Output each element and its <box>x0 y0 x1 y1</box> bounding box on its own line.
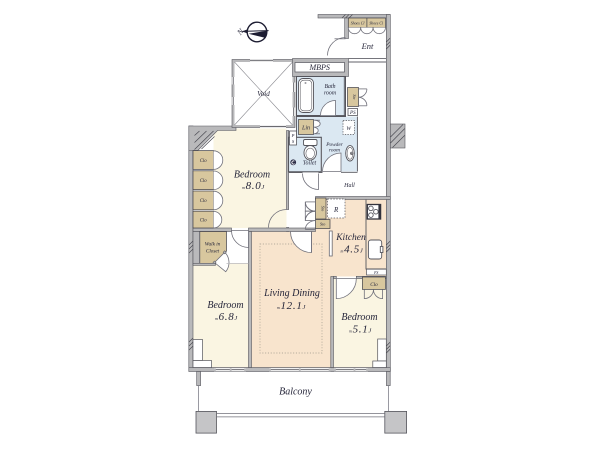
svg-text:FS: FS <box>373 271 378 275</box>
svg-text:Hall: Hall <box>343 183 355 189</box>
svg-text:R: R <box>333 206 339 214</box>
svg-text:Lin: Lin <box>301 126 310 132</box>
svg-text:Ent: Ent <box>361 41 374 51</box>
svg-text:P: P <box>291 133 295 138</box>
svg-text:W: W <box>346 126 351 132</box>
svg-text:Clo: Clo <box>200 159 208 164</box>
svg-text:Clo: Clo <box>200 218 208 223</box>
svg-text:Bath: Bath <box>325 84 336 90</box>
svg-text:Toilet: Toilet <box>303 161 317 167</box>
svg-text:room: room <box>329 148 340 154</box>
svg-text:Living Dining: Living Dining <box>263 288 320 299</box>
svg-text:Stc: Stc <box>352 94 357 99</box>
svg-text:Clo: Clo <box>200 199 208 204</box>
svg-text:N: N <box>235 26 246 37</box>
svg-text:Shoes Cl: Shoes Cl <box>351 22 365 26</box>
svg-text:Clo: Clo <box>370 282 378 288</box>
svg-text:Sto: Sto <box>320 222 325 227</box>
svg-text:Kitchen: Kitchen <box>335 233 366 243</box>
svg-text:Shoes Cl: Shoes Cl <box>369 22 383 26</box>
svg-text:PS: PS <box>349 111 356 116</box>
svg-text:Closet: Closet <box>206 249 220 255</box>
svg-text:Bedroom: Bedroom <box>341 312 377 323</box>
svg-text:Void: Void <box>257 90 270 98</box>
svg-text:Walk in: Walk in <box>205 242 221 248</box>
svg-text:Clo: Clo <box>200 179 208 184</box>
svg-text:m12.1J: m12.1J <box>277 300 307 312</box>
svg-text:room: room <box>324 91 336 97</box>
svg-text:Sto: Sto <box>321 206 326 211</box>
svg-text:Balcony: Balcony <box>279 387 312 398</box>
svg-text:MBPS: MBPS <box>308 63 329 72</box>
svg-text:Bedroom: Bedroom <box>207 300 243 311</box>
svg-text:Bedroom: Bedroom <box>234 170 270 181</box>
